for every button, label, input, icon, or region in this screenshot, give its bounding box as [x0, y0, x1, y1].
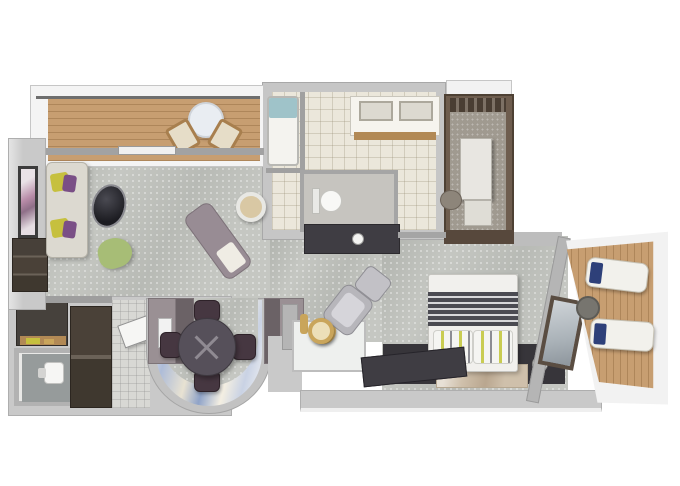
- closet-ottoman: [440, 190, 462, 210]
- wall-segment: [514, 232, 562, 246]
- bathroom-wall: [266, 168, 304, 173]
- toilet-tank: [312, 188, 320, 214]
- desk-book: [26, 338, 40, 344]
- bed-throw-stripes: [428, 292, 518, 326]
- gold-side-table: [308, 318, 334, 344]
- desk-book: [44, 339, 54, 344]
- media-console: [12, 238, 48, 292]
- entry-wardrobe: [70, 306, 112, 408]
- sofa-pillow-purple: [62, 174, 77, 193]
- balcony-railing: [36, 96, 260, 99]
- sink: [399, 101, 433, 121]
- bed-pillow: [473, 330, 513, 364]
- sink: [359, 101, 393, 121]
- guest-wc-toilet: [44, 362, 64, 384]
- sliding-door: [118, 146, 176, 155]
- console-basin: [352, 233, 364, 245]
- wall-segment: [46, 296, 112, 303]
- lounger: [589, 318, 655, 352]
- closet-storage-box: [464, 200, 492, 226]
- bar-bottle: [300, 314, 308, 334]
- round-side-table: [236, 192, 266, 222]
- vanity-front: [354, 132, 436, 140]
- balcony-round-table: [576, 296, 600, 320]
- guest-wc-toilet-base: [38, 368, 46, 378]
- tub-glass: [269, 98, 297, 118]
- sofa-pillow-purple: [62, 220, 77, 239]
- double-vanity: [350, 96, 440, 136]
- toilet: [320, 190, 342, 212]
- bathroom-wall: [300, 92, 305, 172]
- closet-hanging-rail: [450, 98, 506, 112]
- closet-shelving: [460, 138, 492, 200]
- floor-plan: [0, 0, 680, 486]
- closet-wall: [444, 230, 514, 244]
- dining-table: [178, 318, 236, 376]
- lounger-pillow: [593, 323, 606, 345]
- lounger-pillow: [589, 262, 603, 284]
- bedroom-outer-wall: [300, 390, 602, 412]
- framed-art: [18, 166, 38, 238]
- bedroom-wall: [398, 232, 446, 238]
- sofa: [46, 162, 88, 258]
